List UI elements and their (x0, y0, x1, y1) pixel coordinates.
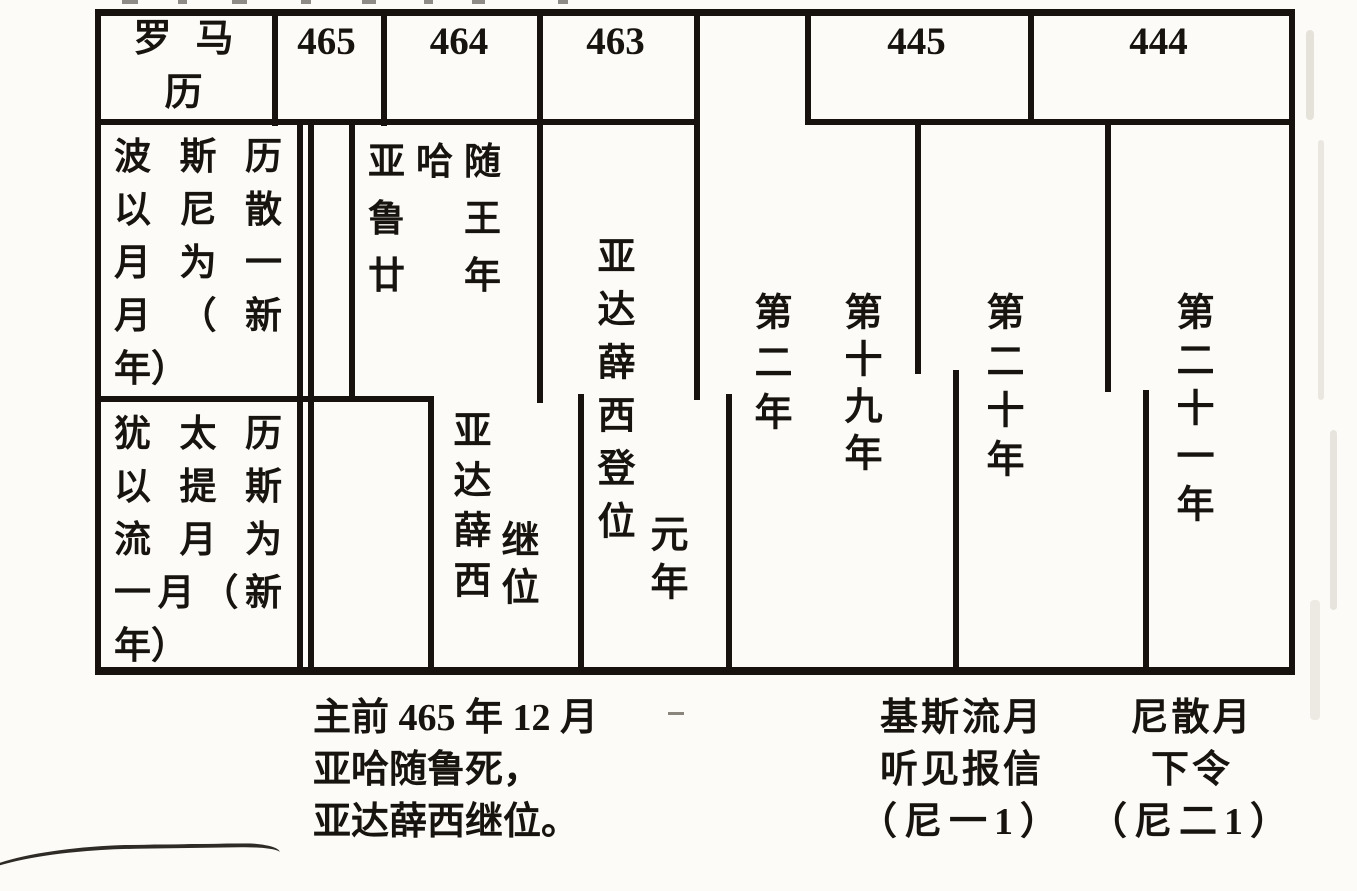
ahasuerus-line: 鲁王 (368, 191, 501, 248)
succession-box-right-border (578, 394, 584, 675)
year20-divider-lower (953, 370, 959, 675)
year-463-cell: 463 (537, 18, 694, 67)
row2-row3-boundary-left-segment (95, 396, 434, 402)
artaxerxes-accession-suffix: 元年 (646, 514, 684, 610)
dec-465-event-marker (308, 119, 314, 675)
scan-artifact-smudge (1310, 600, 1320, 720)
kislev-note-line: （尼一1） (856, 796, 1068, 848)
regnal-year-19-marker: 第十九年 (840, 292, 878, 480)
kislev-note-line: 听见报信 (856, 744, 1068, 796)
persian-label-line: 月（新 (114, 290, 282, 343)
scan-artifact-smudge (1318, 140, 1324, 400)
year19-divider-upper (915, 123, 921, 374)
accession-note: 主前 465 年 12 月 亚哈随鲁死， 亚达薛西继位。 (313, 692, 693, 848)
kislev-note: 基斯流月 听见报信 （尼一1） (856, 692, 1068, 848)
accession-note-line: 亚哈随鲁死， (313, 744, 693, 796)
jewish-label-line: 年） (114, 620, 282, 673)
scanned-page: { "table": { "roman": { "label_lines": [… (0, 0, 1357, 856)
scan-artifact-tick (232, 0, 247, 4)
persian-label-line: 月为一 (114, 237, 282, 290)
artaxerxes-succession-text: 亚达薛西 (449, 410, 487, 610)
ahasuerus-box-left-border (349, 123, 355, 400)
scan-artifact-tick (362, 0, 376, 4)
scan-artifact-tick (178, 0, 187, 4)
jewish-label-line: 犹太历 (114, 408, 282, 461)
scan-artifact-tick (424, 0, 433, 4)
divider-464-463 (537, 9, 543, 403)
regnal-year-2-marker: 第二年 (750, 292, 788, 442)
ahasuerus-line: 廿年 (368, 248, 501, 305)
scan-artifact-smudge (1306, 30, 1314, 120)
ahasuerus-line: 亚哈随 (368, 134, 501, 191)
year-465-cell: 465 (272, 18, 381, 67)
calendar-label-column-border (297, 119, 303, 675)
scan-artifact-tick (472, 0, 485, 4)
jewish-label-line: 一月（新 (114, 567, 282, 620)
jewish-label-line: 以提斯 (114, 461, 282, 514)
divider-463-right-upper (694, 9, 700, 400)
scan-artifact-page-edge (0, 843, 280, 891)
scan-artifact-smudge (1330, 430, 1337, 610)
scan-artifact-dash (668, 712, 684, 715)
nisan-note: 尼散月 下令 （尼二1） (1086, 692, 1298, 848)
scan-artifact-tick (122, 0, 138, 4)
table-border-right (1289, 9, 1295, 675)
year2-divider-lower (726, 394, 732, 675)
regnal-year-20-marker: 第二十年 (982, 292, 1020, 488)
year-464-cell: 464 (381, 18, 537, 67)
kislev-note-line: 基斯流月 (856, 692, 1068, 744)
artaxerxes-succession-suffix: 继位 (497, 520, 535, 614)
regnal-year-21-marker: 第二十一年 (1172, 292, 1210, 532)
nisan-note-line: （尼二1） (1086, 796, 1298, 848)
roman-calendar-label-line2: 历 (95, 70, 272, 118)
succession-box-left-border (428, 398, 434, 675)
roman-calendar-label-line1: 罗马 (95, 16, 272, 64)
artaxerxes-accession-text: 亚达薛西登位 (593, 236, 631, 554)
row1-bottom-right-segment (805, 119, 1295, 125)
accession-note-line: 主前 465 年 12 月 (313, 692, 693, 744)
year21-divider-lower (1143, 390, 1149, 675)
jewish-calendar-label: 犹太历 以提斯 流月为 一月（新 年） (114, 408, 282, 673)
persian-label-line: 以尼散 (114, 184, 282, 237)
scan-artifact-tick (301, 0, 311, 4)
nisan-note-line: 下令 (1086, 744, 1298, 796)
scan-artifact-tick (558, 0, 568, 4)
accession-note-line: 亚达薛西继位。 (313, 796, 693, 848)
row1-bottom-left-segment (95, 119, 700, 125)
jewish-label-line: 流月为 (114, 514, 282, 567)
year-444-cell: 444 (1028, 18, 1289, 67)
persian-calendar-label: 波斯历 以尼散 月为一 月（新 年） (114, 131, 282, 396)
year-445-cell: 445 (805, 18, 1028, 67)
ahasuerus-year20-text: 亚哈随 鲁王 廿年 (368, 134, 501, 305)
year20-divider-upper (1105, 123, 1111, 392)
nisan-note-line: 尼散月 (1086, 692, 1298, 744)
persian-label-line: 年） (114, 343, 282, 396)
persian-label-line: 波斯历 (114, 131, 282, 184)
